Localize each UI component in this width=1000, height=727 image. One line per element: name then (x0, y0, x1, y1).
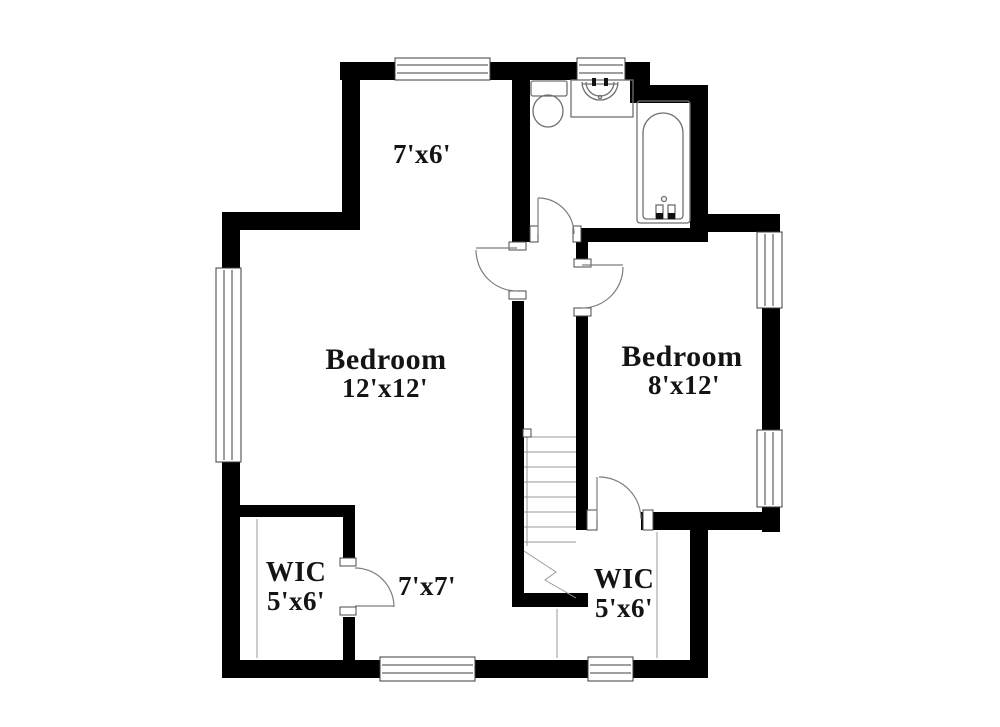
window-right-upper (757, 232, 782, 308)
bedroom-left-door (476, 248, 517, 291)
wall-segment (574, 228, 708, 242)
label-area-7x7-dims: 7'x7' (398, 571, 456, 601)
floor-plan-drawing: 7'x6' Bedroom 12'x12' Bedroom 8'x12' WIC… (0, 0, 1000, 727)
wall-segment (343, 617, 355, 660)
door-jambs (340, 226, 653, 615)
window-top-nook (395, 58, 490, 80)
window-bottom-right (588, 657, 633, 681)
label-wic-left-dims: 5'x6' (267, 586, 325, 616)
wall-segment (343, 505, 355, 558)
label-bedroom-left: Bedroom (325, 343, 446, 376)
label-bedroom-right: Bedroom (621, 340, 742, 373)
window-bottom-left (380, 657, 475, 681)
wall-segment (512, 80, 530, 226)
wic-left-door (355, 568, 394, 607)
wall-segment (690, 512, 708, 678)
wall-segment (576, 316, 588, 512)
jamb (340, 607, 356, 615)
jamb (530, 226, 538, 242)
jamb (574, 259, 591, 267)
sink-icon (571, 78, 633, 117)
wall-segment (512, 301, 524, 607)
wall-segment (641, 512, 780, 530)
jamb (509, 242, 526, 250)
jamb (340, 558, 356, 566)
jamb (587, 510, 597, 530)
jamb (643, 510, 653, 530)
wic-right-door (597, 477, 641, 519)
stair-rail-post (523, 429, 531, 437)
bathtub-icon (637, 101, 690, 223)
label-bedroom-right-dims: 8'x12' (648, 370, 720, 400)
floor-plan: 7'x6' Bedroom 12'x12' Bedroom 8'x12' WIC… (0, 0, 1000, 727)
window-right-lower (757, 430, 782, 507)
label-nook-dims: 7'x6' (393, 139, 451, 169)
wall-segment (342, 62, 360, 230)
window-top-bath (577, 58, 625, 80)
jamb (509, 291, 526, 299)
label-wic-right: WIC (594, 564, 655, 595)
wall-segment (232, 505, 355, 517)
window-left-bedroom (216, 268, 241, 462)
room-labels: 7'x6' Bedroom 12'x12' Bedroom 8'x12' WIC… (266, 139, 743, 623)
bedroom-right-door (582, 265, 623, 308)
wall-segment (512, 593, 588, 607)
wall-segment (222, 212, 360, 230)
wall-segment (512, 226, 532, 242)
label-wic-right-dims: 5'x6' (595, 593, 653, 623)
stair-break-line (524, 551, 576, 598)
wall-segment (690, 85, 708, 232)
label-wic-left: WIC (266, 557, 327, 588)
label-bedroom-left-dims: 12'x12' (342, 373, 428, 403)
bathroom-door (538, 198, 574, 234)
stairs-icon (523, 429, 576, 598)
toilet-icon (531, 81, 567, 127)
jamb (574, 308, 591, 316)
